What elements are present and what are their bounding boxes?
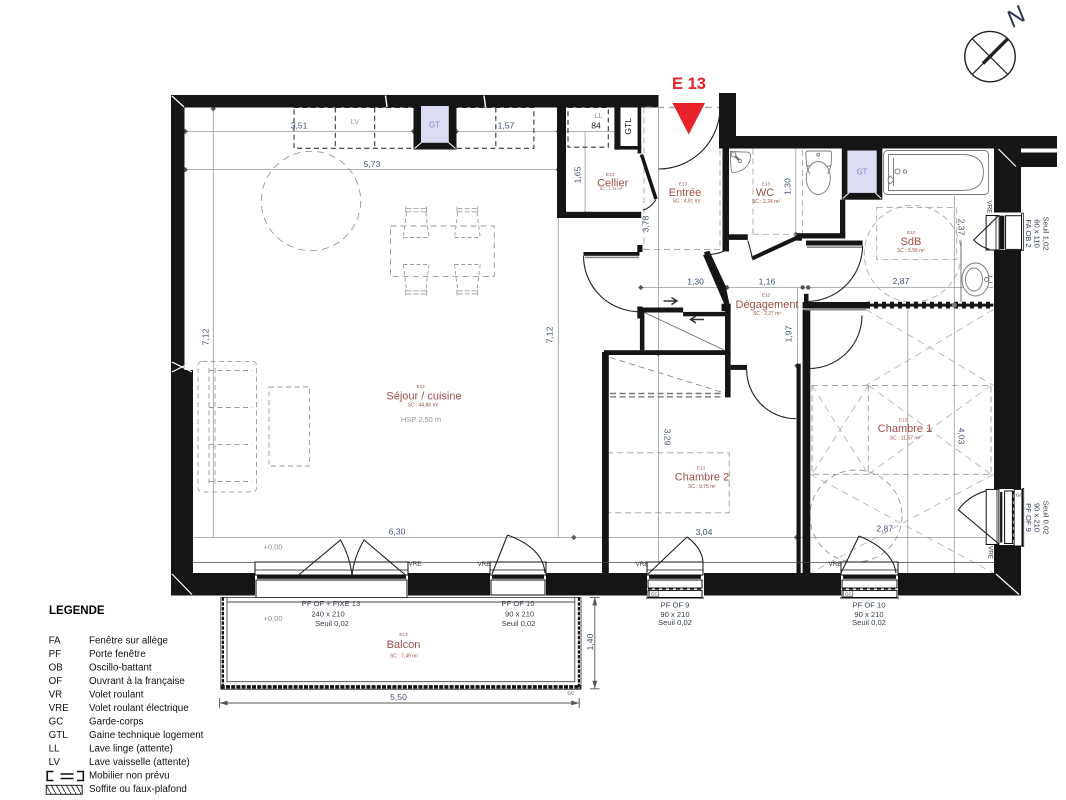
svg-text:5,73: 5,73 [364,159,381,169]
svg-text:1,30: 1,30 [783,178,793,195]
svg-text:60 x 110: 60 x 110 [1033,219,1042,248]
svg-text:Mobilier non prévu: Mobilier non prévu [89,770,170,781]
svg-text:1,57: 1,57 [498,121,515,131]
svg-text:Seuil 0,02: Seuil 0,02 [1042,501,1051,535]
svg-text:LV: LV [351,117,360,126]
svg-text:Chambre 1: Chambre 1 [878,423,932,435]
svg-text:VR: VR [49,689,63,700]
svg-text:1,40: 1,40 [585,633,595,650]
svg-text:LL: LL [594,111,602,120]
svg-text:SC : 2,27 m²: SC : 2,27 m² [753,311,781,317]
svg-text:E13: E13 [697,465,706,470]
svg-text:Seuil 0,02: Seuil 0,02 [502,619,536,628]
svg-text:Entrée: Entrée [669,187,701,199]
svg-text:Balcon: Balcon [387,639,421,651]
svg-text:4,03: 4,03 [957,428,967,445]
svg-text:VRE: VRE [986,201,993,214]
svg-text:Porte fenêtre: Porte fenêtre [89,649,146,660]
svg-text:Lave linge (attente): Lave linge (attente) [89,743,173,754]
svg-text:SdB: SdB [901,236,922,248]
svg-text:PF OF 9: PF OF 9 [1024,503,1033,532]
svg-text:PF OF 10: PF OF 10 [502,599,535,608]
svg-text:GT: GT [429,121,440,130]
svg-text:OB: OB [49,662,64,673]
svg-text:OF: OF [49,676,63,687]
svg-text:6,30: 6,30 [389,527,406,537]
svg-text:E 13: E 13 [672,75,706,93]
svg-text:Soffite ou faux-plafond: Soffite ou faux-plafond [89,784,187,795]
svg-text:GC: GC [651,592,659,597]
svg-text:E13: E13 [907,230,916,235]
svg-text:84: 84 [591,121,601,131]
svg-text:SC : 5,56 m²: SC : 5,56 m² [897,248,925,254]
svg-text:GC: GC [49,716,64,727]
svg-text:Fenêtre sur allège: Fenêtre sur allège [89,635,169,646]
svg-text:GTL: GTL [623,118,633,135]
svg-text:3,78: 3,78 [641,215,651,232]
svg-text:Dégagement: Dégagement [736,299,799,311]
svg-text:Seuil 0,02: Seuil 0,02 [658,618,692,627]
svg-text:E13: E13 [762,293,771,298]
svg-text:SC : 4,91 m²: SC : 4,91 m² [672,198,700,204]
svg-text:1,97: 1,97 [784,325,794,342]
svg-text:VRE: VRE [409,561,422,568]
svg-text:GTL: GTL [49,730,69,741]
svg-text:PF OF 9: PF OF 9 [661,600,690,609]
svg-text:LL: LL [49,743,60,754]
svg-text:VRE: VRE [478,561,491,568]
svg-text:VRE: VRE [636,561,649,568]
svg-text:E13: E13 [679,181,688,186]
svg-text:2,37: 2,37 [957,219,967,236]
svg-text:PF OF + FIXE 13: PF OF + FIXE 13 [302,599,360,608]
svg-text:FA OB 2: FA OB 2 [1024,219,1033,247]
svg-text:GC: GC [1016,493,1024,498]
svg-text:HSP 2,50 m: HSP 2,50 m [401,415,441,424]
svg-text:Seuil 1,02: Seuil 1,02 [1042,217,1051,251]
svg-text:90 x 210: 90 x 210 [505,610,534,619]
svg-text:1,65: 1,65 [573,166,583,183]
svg-text:Volet roulant: Volet roulant [89,689,144,700]
svg-text:E13: E13 [399,632,408,637]
svg-text:3,04: 3,04 [696,527,713,537]
svg-text:GC: GC [845,592,853,597]
svg-text:SC : 7,49 m²: SC : 7,49 m² [390,653,418,659]
svg-text:GT: GT [856,168,867,177]
svg-text:VRE: VRE [829,561,842,568]
svg-text:SC : 11,57 m²: SC : 11,57 m² [890,435,921,441]
svg-text:PF: PF [49,649,62,660]
svg-text:1,16: 1,16 [759,277,776,287]
svg-text:VRE: VRE [49,703,70,714]
svg-text:E13: E13 [899,417,908,422]
svg-text:PF OF 10: PF OF 10 [853,601,886,610]
svg-text:Lave vaisselle (attente): Lave vaisselle (attente) [89,757,190,768]
svg-text:LV: LV [49,757,61,768]
svg-text:1,30: 1,30 [687,277,704,287]
svg-text:Chambre 2: Chambre 2 [675,472,729,484]
svg-text:VRE: VRE [987,546,994,559]
svg-text:3,51: 3,51 [291,121,308,131]
svg-text:Oscillo-battant: Oscillo-battant [89,662,152,673]
svg-text:Seuil 0,02: Seuil 0,02 [315,619,349,628]
svg-text:Seuil 0,02: Seuil 0,02 [852,618,886,627]
svg-text:SC : 9,75 m²: SC : 9,75 m² [688,484,716,490]
svg-text:SC : 1,74 m²: SC : 1,74 m² [600,186,623,191]
svg-text:+0,00: +0,00 [264,543,283,552]
svg-text:3,29: 3,29 [663,429,673,446]
svg-text:5,50: 5,50 [390,692,407,702]
svg-text:Ouvrant à la française: Ouvrant à la française [89,676,185,687]
svg-text:240 x 210: 240 x 210 [311,610,344,619]
svg-text:2,87: 2,87 [876,524,893,534]
svg-text:WC: WC [756,187,774,199]
svg-text:Volet roulant électrique: Volet roulant électrique [89,703,189,714]
svg-text:+0,00: +0,00 [264,614,283,623]
svg-text:SC : 2,24 m²: SC : 2,24 m² [752,199,780,205]
svg-text:LEGENDE: LEGENDE [49,605,105,617]
svg-text:90 x 210: 90 x 210 [1033,503,1042,532]
svg-text:E13: E13 [417,384,426,389]
svg-text:E13: E13 [762,182,771,187]
svg-text:Garde-corps: Garde-corps [89,716,144,727]
svg-text:GC: GC [568,691,576,696]
svg-text:SC : 44,86 m²: SC : 44,86 m² [408,402,439,408]
svg-text:Séjour / cuisine: Séjour / cuisine [386,390,461,402]
svg-text:7,12: 7,12 [545,326,555,343]
svg-text:Gaine technique logement: Gaine technique logement [89,730,204,741]
svg-text:7,12: 7,12 [201,328,211,345]
svg-text:2,87: 2,87 [893,276,910,286]
svg-text:FA: FA [49,635,61,646]
